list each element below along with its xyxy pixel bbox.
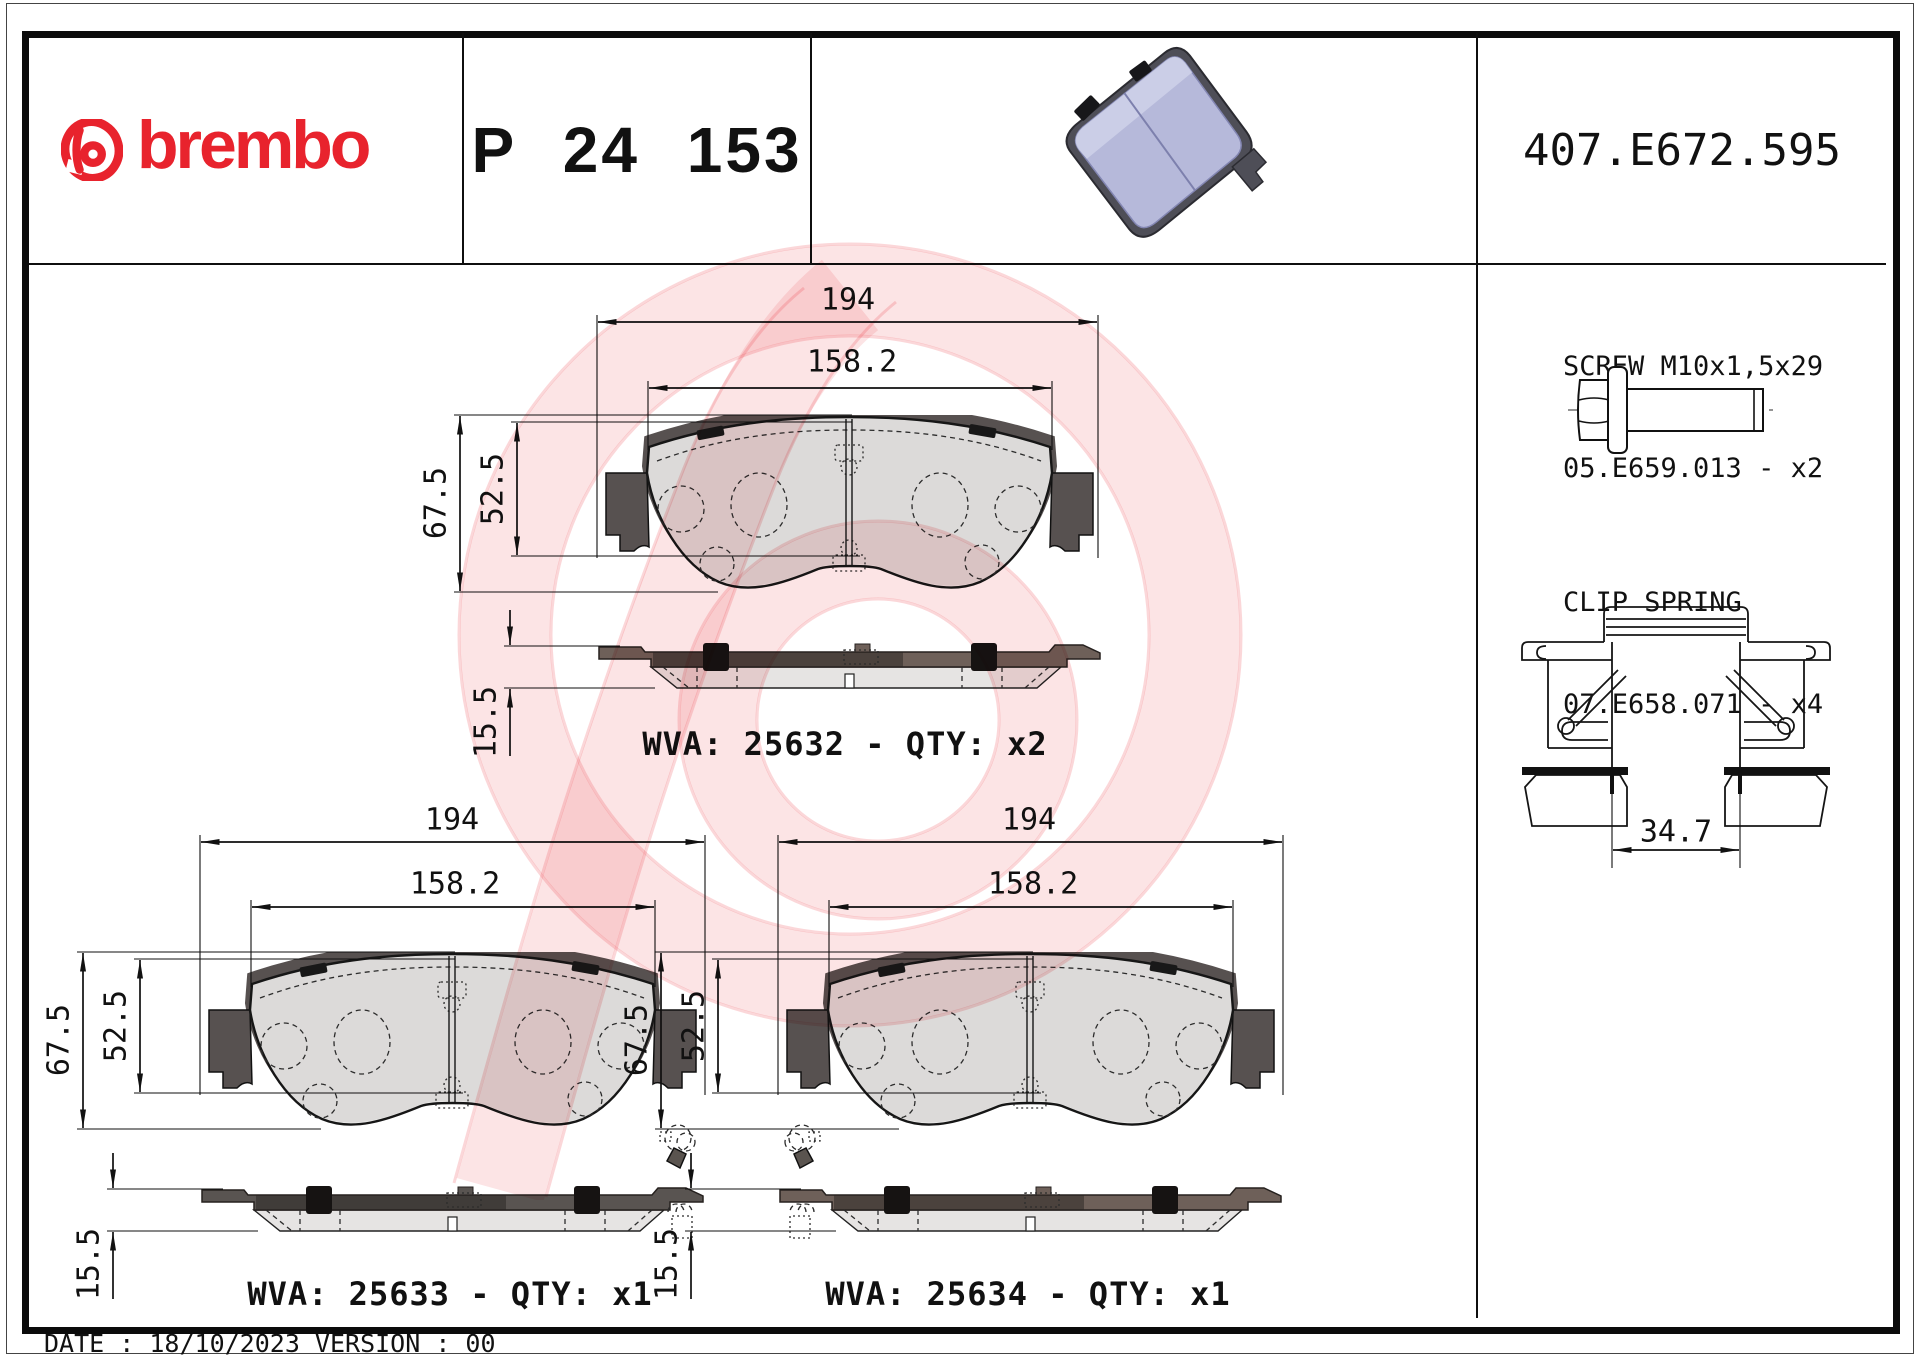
dim-total-height: 67.5 <box>42 1004 77 1076</box>
dim-thickness: 15.5 <box>650 1228 685 1300</box>
date-version-line: DATE : 18/10/2023 VERSION : 00 <box>44 1329 496 1358</box>
dim-total-height: 67.5 <box>620 1004 655 1076</box>
dim-friction-width: 158.2 <box>988 867 1078 902</box>
wva-label: WVA: 25632 - QTY: x2 <box>642 725 1047 763</box>
dim-friction-height: 52.5 <box>99 990 134 1062</box>
wear-indicator-side <box>790 1204 814 1238</box>
pad-top-side-view <box>599 643 1100 688</box>
dim-friction-height: 52.5 <box>677 990 712 1062</box>
pad-bottom-left-side-view <box>202 1186 703 1231</box>
pad-bottom-right-group <box>655 835 1283 1299</box>
wva-label: WVA: 25633 - QTY: x1 <box>247 1275 652 1313</box>
wear-indicator-front <box>785 1125 820 1168</box>
dim-total-height: 67.5 <box>419 467 454 539</box>
dim-friction-height: 52.5 <box>476 453 511 525</box>
dim-thickness: 15.5 <box>469 686 504 758</box>
pad-bottom-right-side-view <box>780 1186 1281 1231</box>
datasheet-page: brembo P 24 153 407.E672.595 SCREW M10x1… <box>0 0 1920 1358</box>
pad-top-group <box>454 315 1100 756</box>
dim-thickness: 15.5 <box>72 1228 107 1300</box>
dim-total-width: 194 <box>425 803 479 838</box>
pad-drawings-canvas <box>0 0 1920 1358</box>
dim-total-width: 194 <box>821 283 875 318</box>
wva-label: WVA: 25634 - QTY: x1 <box>825 1275 1230 1313</box>
dim-total-width: 194 <box>1002 803 1056 838</box>
pad-top-front-view <box>606 410 1093 588</box>
pad-bottom-left-group <box>77 835 705 1299</box>
dim-friction-width: 158.2 <box>807 345 897 380</box>
dim-friction-width: 158.2 <box>410 867 500 902</box>
pad-bottom-right-front-view <box>787 947 1274 1125</box>
wear-indicator-front <box>660 1125 695 1168</box>
